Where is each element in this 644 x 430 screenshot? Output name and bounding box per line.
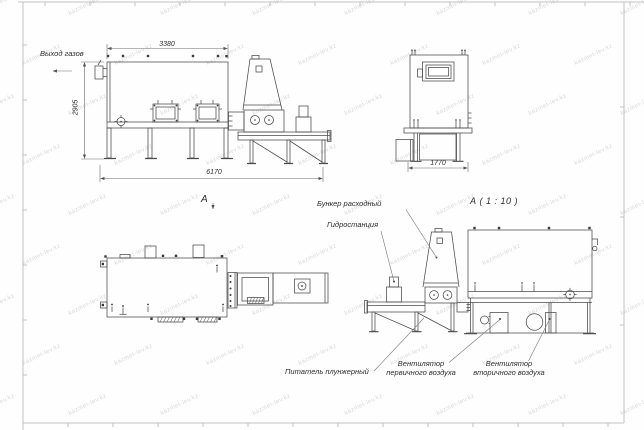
furnace-hatch-1 [150, 100, 181, 122]
leader-hydro [381, 231, 394, 282]
detail-valve-symbol [563, 288, 576, 301]
gas-outlet-stub [95, 60, 107, 79]
leader-hopper [406, 210, 437, 258]
plan-feeder [228, 273, 328, 309]
valve-symbol [115, 115, 128, 128]
detail-feeder [365, 229, 471, 332]
dim-1770: 1770 [423, 160, 453, 168]
leader-lines [374, 210, 550, 372]
plan-bolts [102, 255, 224, 320]
secondary-fan [526, 313, 556, 334]
detail-grate-pins [474, 282, 535, 291]
detail-furnace-body [468, 230, 592, 298]
rear-legs [411, 133, 464, 161]
leader-primary-fan [449, 320, 500, 363]
primary-fan-label-2: первичного воздуха [382, 369, 460, 378]
rear-side-box [396, 140, 413, 162]
detail-a-title: А ( 1 : 10 ) [466, 196, 522, 206]
furnace-legs [104, 128, 233, 159]
view-a-label: А [201, 194, 208, 206]
furnace-top-bolts [107, 55, 228, 58]
detail-hopper-outline [423, 232, 459, 287]
rear-opening [418, 62, 455, 81]
sheet-frame [18, 2, 644, 430]
hopper-label: Бункер расходный [317, 200, 381, 209]
furnace-body [107, 62, 228, 128]
view-plan-drawing [101, 245, 329, 322]
view-rear-drawing [396, 50, 472, 162]
dim-2905: 2905 [73, 91, 82, 125]
plan-grates [158, 317, 217, 322]
leader-secondary-fan [529, 320, 550, 362]
rear-body [410, 55, 468, 128]
plan-pins [111, 265, 224, 315]
view-detail-drawing [365, 227, 598, 334]
furnace-hatch-2 [193, 100, 222, 122]
feeder-assembly [229, 56, 332, 164]
hopper-outline [243, 59, 282, 110]
secondary-fan-label-2: вторичного воздуха [470, 369, 548, 378]
drawing-sheet: kazmet-lev.kzkazmet-lev.kzkazmet-lev.kzk… [0, 0, 644, 430]
hydro-label: Гидростанция [327, 221, 378, 230]
dimension-lines-side [53, 44, 323, 209]
dim-3380: 3380 [151, 41, 183, 49]
detail-bracket [592, 239, 598, 251]
view-side-drawing [95, 55, 331, 164]
gas-outlet-label: Выход газов [40, 50, 84, 59]
dim-6170: 6170 [197, 169, 231, 177]
feeder-label: Питатель плунжерный [285, 368, 369, 377]
primary-fan [481, 313, 509, 334]
plan-body [107, 258, 227, 317]
